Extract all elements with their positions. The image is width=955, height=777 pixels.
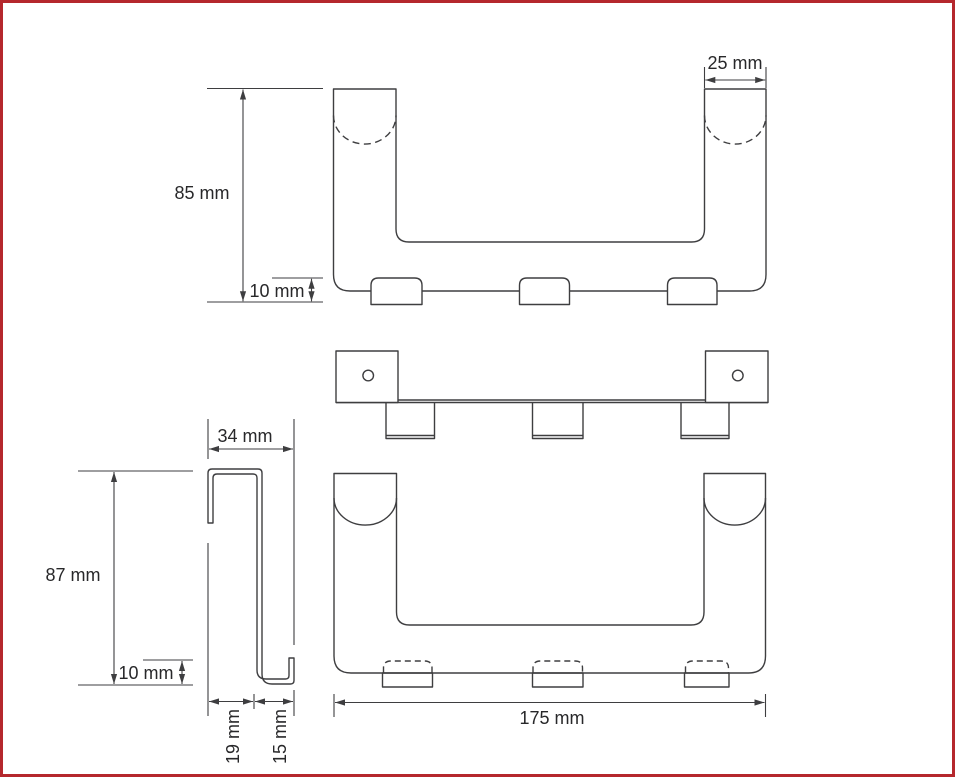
back-view-outline [334, 474, 766, 674]
dim-hook-depth: 15 mm [255, 690, 294, 764]
back-hook-tab-left-end [383, 673, 433, 687]
plan-left-hanger-plate [336, 351, 398, 403]
dim-label-inner-depth: 19 mm [223, 709, 243, 764]
front-view: 85 mm 10 mm 25 mm [174, 53, 766, 305]
side-view: 34 mm 87 mm 10 mm 19 mm [45, 419, 294, 764]
dim-label-front-height: 85 mm [174, 183, 229, 203]
front-view-outline [334, 89, 767, 291]
dim-label-overall-width: 175 mm [519, 708, 584, 728]
plan-hook-tab-left [386, 403, 435, 439]
tab-outline [681, 403, 729, 439]
back-hook-tab-middle-end [533, 673, 584, 687]
front-hook-tab-right [668, 278, 718, 305]
technical-drawing-svg: 85 mm 10 mm 25 mm [3, 3, 952, 774]
dim-label-hook-lip: 10 mm [118, 663, 173, 683]
drawing-frame: 85 mm 10 mm 25 mm [0, 0, 955, 777]
dim-overall-width: 175 mm [334, 694, 766, 728]
dim-label-front-hook-height: 10 mm [249, 281, 304, 301]
tab-outline [533, 403, 584, 439]
side-profile-outline [208, 469, 294, 684]
dim-side-height: 87 mm [45, 471, 193, 685]
back-hook-tab-right-end [685, 673, 730, 687]
dim-inner-depth: 19 mm [208, 543, 254, 764]
dim-hook-lip: 10 mm [118, 660, 193, 684]
tab-outline [386, 403, 435, 439]
front-hook-tab-middle [520, 278, 570, 305]
dim-label-overall-depth: 34 mm [217, 426, 272, 446]
back-view: 175 mm [334, 474, 766, 729]
plan-hook-tab-middle [533, 403, 584, 439]
dim-front-hook-height: 10 mm [249, 278, 323, 301]
dim-hanger-width: 25 mm [705, 53, 767, 88]
plan-view [336, 351, 768, 439]
dim-front-height: 85 mm [174, 89, 323, 303]
plan-hook-tab-right [681, 403, 729, 439]
dim-label-hanger-width: 25 mm [707, 53, 762, 73]
dim-label-side-height: 87 mm [45, 565, 100, 585]
dim-overall-depth: 34 mm [208, 419, 294, 645]
plan-right-hanger-plate [706, 351, 769, 403]
dim-label-hook-depth: 15 mm [270, 709, 290, 764]
front-hook-tab-left [371, 278, 422, 305]
